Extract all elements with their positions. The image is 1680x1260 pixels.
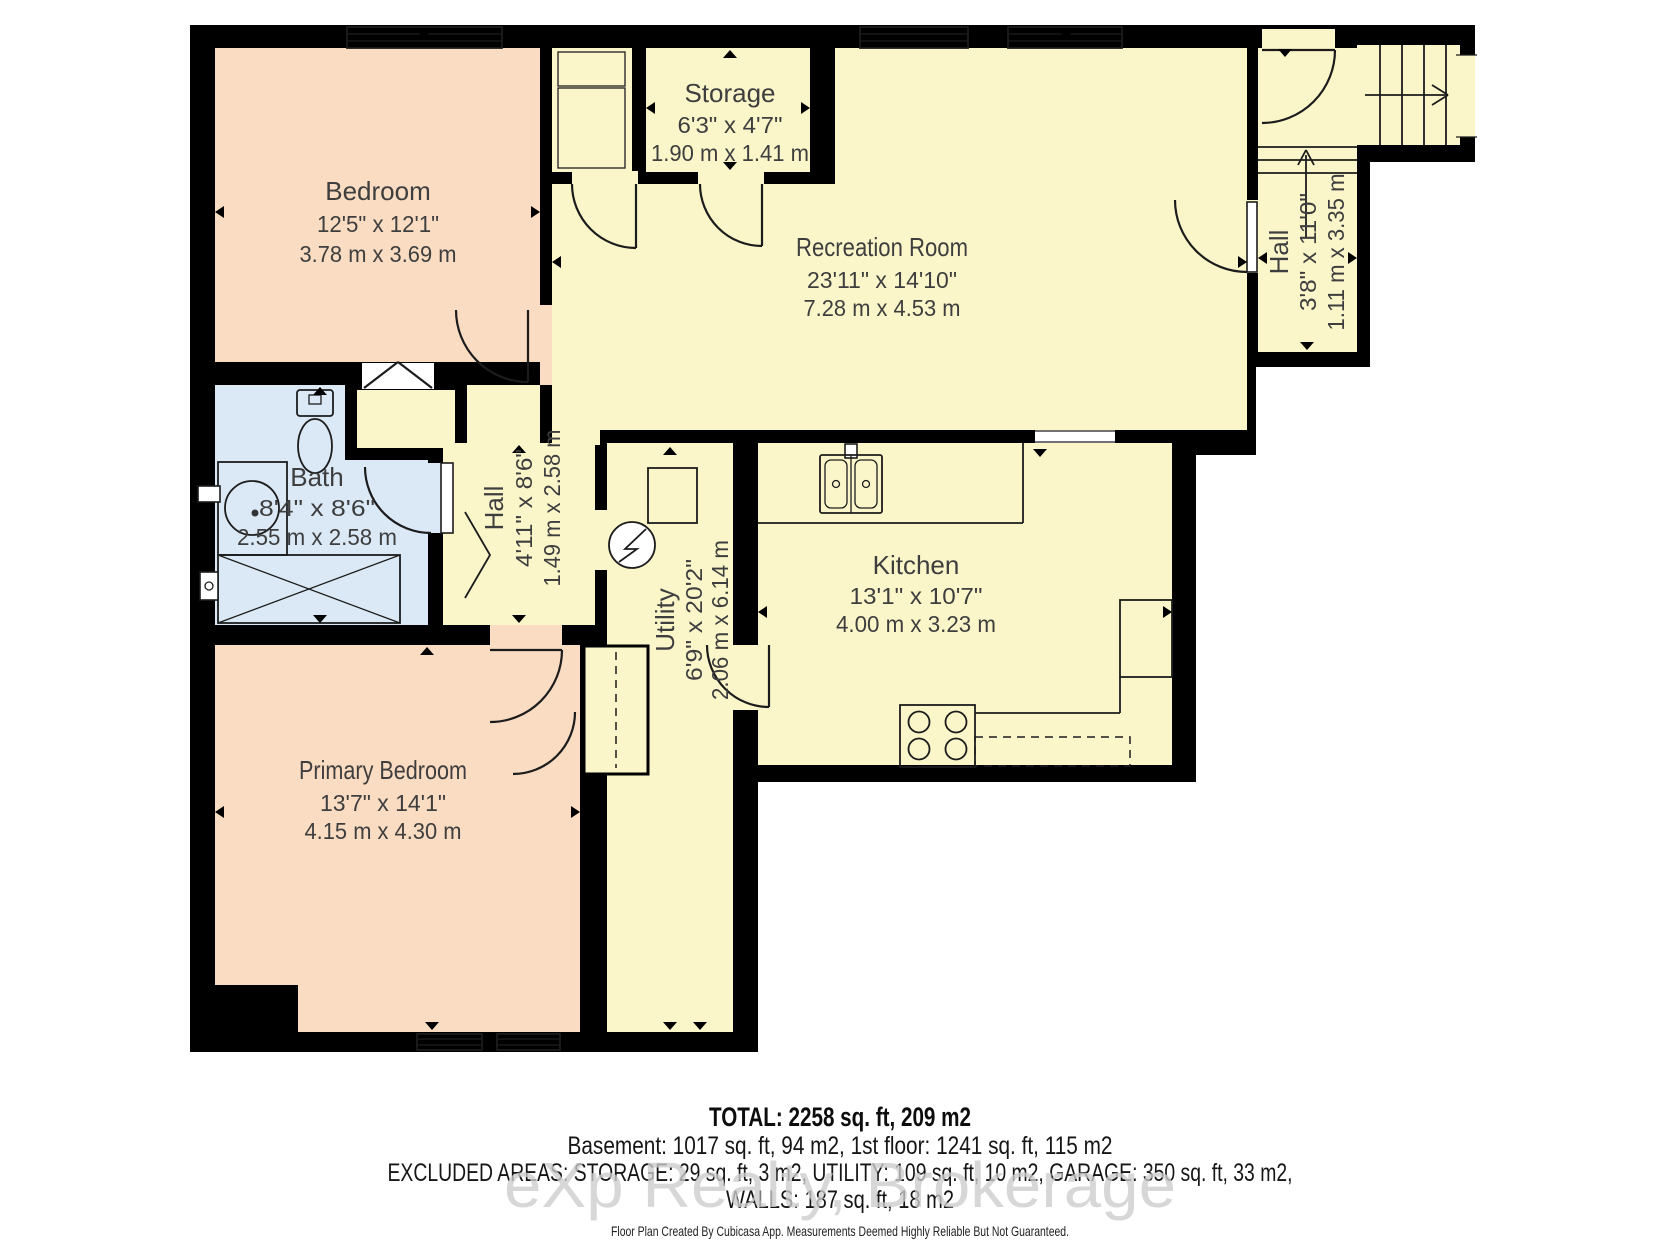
floor-plan-page: Bedroom 12'5" x 12'1" 3.78 m x 3.69 m St… (0, 0, 1680, 1260)
bath-dim-metric: 2.55 m x 2.58 m (237, 524, 397, 550)
hall-middle-label: Hall (479, 486, 509, 531)
recreation-label: Recreation Room (796, 232, 968, 262)
utility-dim-metric: 2.06 m x 6.14 m (707, 540, 733, 700)
floor-plan-drawing: Bedroom 12'5" x 12'1" 3.78 m x 3.69 m St… (0, 0, 1680, 1260)
primary-bedroom-dim-metric: 4.15 m x 4.30 m (305, 818, 462, 844)
kitchen-dim-imperial: 13'1" x 10'7" (850, 583, 983, 609)
hall-middle-dim-imperial: 4'11" x 8'6" (511, 449, 537, 567)
recreation-dim-metric: 7.28 m x 4.53 m (804, 295, 961, 321)
bedroom-dim-imperial: 12'5" x 12'1" (317, 211, 439, 237)
bath-label: Bath (290, 462, 344, 492)
storage-dim-metric: 1.90 m x 1.41 m (651, 140, 809, 166)
bedroom-door-gap (540, 305, 552, 385)
summary-total: TOTAL: 2258 sq. ft, 209 m2 (709, 1102, 971, 1132)
utility-dim-imperial: 6'9" x 20'2" (681, 559, 707, 681)
hall-right-dim-imperial: 3'8" x 11'0" (1295, 193, 1321, 311)
bath-dim-imperial: 8'4" x 8'6" (259, 495, 375, 521)
primary-bedroom-dim-imperial: 13'7" x 14'1" (320, 790, 446, 816)
opening-kitchen-passage (1035, 430, 1115, 443)
electrical-panel-icon (609, 522, 655, 568)
kitchen-label: Kitchen (873, 550, 960, 580)
utility-label: Utility (650, 588, 680, 652)
storage-dim-imperial: 6'3" x 4'7" (678, 112, 783, 138)
kitchen-dim-metric: 4.00 m x 3.23 m (836, 611, 996, 637)
bedroom-dim-metric: 3.78 m x 3.69 m (300, 241, 457, 267)
hall-middle-dim-metric: 1.49 m x 2.58 m (539, 430, 565, 587)
storage-label: Storage (684, 78, 775, 108)
hall-right-dim-metric: 1.11 m x 3.35 m (1323, 174, 1349, 331)
brokerage-watermark: eXp Realty, Brokerage (504, 1149, 1176, 1221)
bedroom-label: Bedroom (325, 176, 431, 206)
disclaimer-text: Floor Plan Created By Cubicasa App. Meas… (611, 1223, 1069, 1239)
recreation-dim-imperial: 23'11" x 14'10" (807, 267, 957, 293)
hall-right-label: Hall (1264, 230, 1294, 275)
primary-bedroom-label: Primary Bedroom (299, 755, 467, 785)
bedroom-closet (357, 390, 455, 448)
